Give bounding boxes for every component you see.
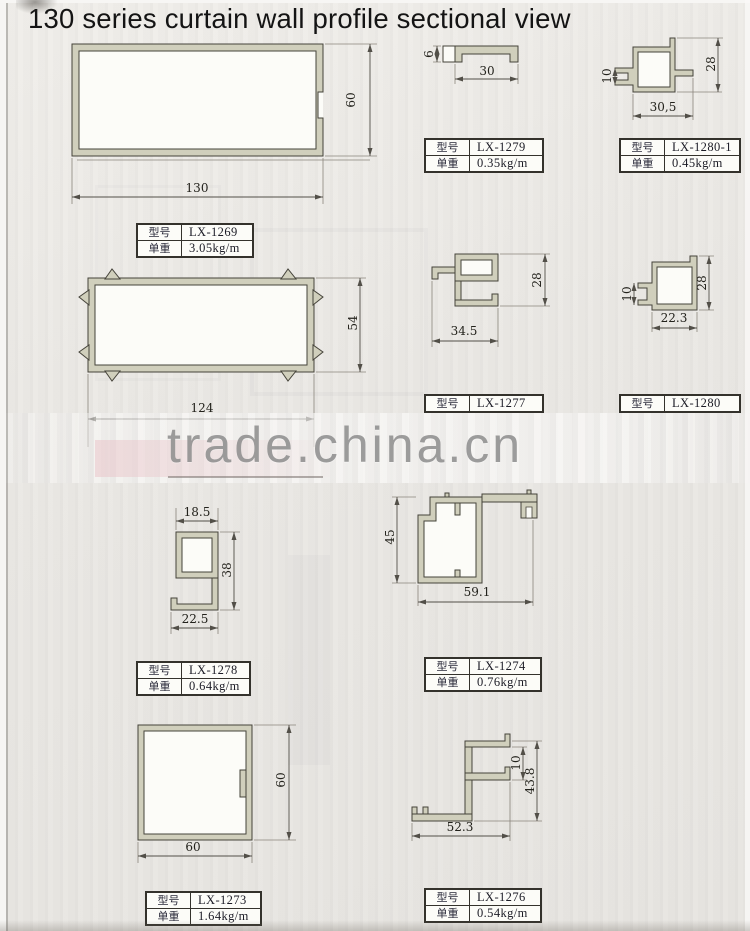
dim-bottom: 22.5 bbox=[182, 612, 209, 626]
table-row-model: 型号 LX-1280-1 bbox=[621, 140, 739, 155]
profile-drawing-lx1269: 130 60 bbox=[72, 44, 377, 204]
profile-face bbox=[72, 44, 323, 156]
table-row-weight: 单重 0.45kg/m bbox=[621, 155, 739, 171]
weight-label: 单重 bbox=[621, 156, 665, 171]
table-row-model: 型号 LX-1280 bbox=[621, 396, 739, 411]
model-label: 型号 bbox=[426, 396, 470, 411]
weight-label: 单重 bbox=[426, 156, 470, 171]
profile-drawing-lx1273: 60 60 bbox=[138, 725, 296, 863]
profile-wall bbox=[171, 578, 218, 610]
dim-top: 18.5 bbox=[184, 505, 211, 519]
model-value: LX-1279 bbox=[470, 140, 542, 155]
dim-height: 60 bbox=[344, 92, 358, 107]
table-row-model: 型号 LX-1269 bbox=[138, 225, 252, 240]
table-row-model: 型号 LX-1278 bbox=[138, 663, 249, 678]
table-row-model: 型号 LX-1279 bbox=[426, 140, 542, 155]
profile-drawing-lx1274: 45 59.1 bbox=[383, 490, 537, 606]
model-label: 型号 bbox=[621, 396, 665, 411]
table-row-model: 型号 LX-1274 bbox=[426, 659, 540, 674]
spec-table-lx1280: 型号 LX-1280 bbox=[619, 394, 741, 413]
hook-slot bbox=[526, 507, 532, 518]
dim-height: 6 bbox=[422, 50, 436, 58]
scan-smudge bbox=[16, 0, 58, 14]
dim-height: 54 bbox=[346, 315, 360, 331]
watermark-underline bbox=[168, 476, 323, 478]
profile-wall bbox=[465, 780, 472, 814]
dim-mouth: 10 bbox=[600, 68, 614, 83]
dim-height: 28 bbox=[530, 272, 544, 287]
table-row-weight: 单重 3.05kg/m bbox=[138, 240, 252, 256]
profile-wall bbox=[465, 734, 510, 747]
dim-height: 38 bbox=[220, 562, 234, 577]
spec-table-lx1279: 型号 LX-1279 单重 0.35kg/m bbox=[424, 138, 544, 173]
dim-step: 10 bbox=[509, 755, 523, 770]
table-row-weight: 单重 0.64kg/m bbox=[138, 678, 249, 694]
table-row-weight: 单重 0.54kg/m bbox=[426, 905, 540, 921]
profile-arm bbox=[482, 494, 537, 502]
spec-table-lx1274: 型号 LX-1274 单重 0.76kg/m bbox=[424, 657, 542, 692]
profile-face bbox=[443, 46, 455, 62]
weight-label: 单重 bbox=[138, 241, 182, 256]
model-label: 型号 bbox=[426, 140, 470, 155]
dim-height: 28 bbox=[695, 275, 709, 290]
weight-label: 单重 bbox=[138, 679, 182, 694]
model-value: LX-1269 bbox=[182, 225, 252, 240]
dim-height: 60 bbox=[274, 772, 288, 787]
weight-value: 0.54kg/m bbox=[470, 906, 540, 921]
inner-tab bbox=[240, 770, 246, 797]
table-row-weight: 单重 0.76kg/m bbox=[426, 674, 540, 690]
weight-label: 单重 bbox=[426, 906, 470, 921]
profile-hook bbox=[412, 807, 428, 814]
dim-width: 59.1 bbox=[464, 585, 491, 599]
model-value: LX-1280 bbox=[665, 396, 739, 411]
dim-mouth: 10 bbox=[620, 286, 634, 301]
dim-width: 130 bbox=[186, 181, 209, 195]
weight-value: 0.76kg/m bbox=[470, 675, 540, 690]
table-row-model: 型号 LX-1273 bbox=[147, 893, 260, 908]
model-label: 型号 bbox=[621, 140, 665, 155]
dim-height: 43.8 bbox=[523, 768, 537, 795]
model-value: LX-1273 bbox=[191, 893, 260, 908]
spec-table-lx1280-1: 型号 LX-1280-1 单重 0.45kg/m bbox=[619, 138, 741, 173]
model-value: LX-1277 bbox=[470, 396, 542, 411]
watermark-text: trade.china.cn bbox=[167, 416, 523, 474]
spec-table-lx1278: 型号 LX-1278 单重 0.64kg/m bbox=[136, 661, 251, 696]
profile-face bbox=[138, 725, 252, 840]
profile-drawing-lx1280-1: 10 28 30,5 bbox=[600, 38, 723, 120]
dim-width: 52.3 bbox=[447, 820, 474, 834]
profile-face bbox=[418, 497, 482, 583]
scan-edge bbox=[0, 920, 750, 931]
dim-height: 45 bbox=[383, 529, 397, 544]
profile-drawing-lx1278: 18.5 38 22.5 bbox=[171, 505, 240, 634]
model-value: LX-1276 bbox=[470, 890, 540, 905]
profile-drawing-lx1279: 6 30 bbox=[422, 46, 518, 84]
scan-edge bbox=[6, 0, 8, 931]
profile-wall bbox=[455, 46, 518, 62]
spec-table-lx1276: 型号 LX-1276 单重 0.54kg/m bbox=[424, 888, 542, 923]
model-label: 型号 bbox=[426, 890, 470, 905]
spec-table-lx1269: 型号 LX-1269 单重 3.05kg/m bbox=[136, 223, 254, 258]
model-label: 型号 bbox=[147, 893, 191, 908]
model-label: 型号 bbox=[138, 663, 182, 678]
table-row-model: 型号 LX-1276 bbox=[426, 890, 540, 905]
table-row-weight: 单重 0.35kg/m bbox=[426, 155, 542, 171]
page-title: 130 series curtain wall profile sectiona… bbox=[28, 3, 571, 35]
model-value: LX-1280-1 bbox=[665, 140, 739, 155]
model-label: 型号 bbox=[426, 659, 470, 674]
scanned-profile-sheet: 130 series curtain wall profile sectiona… bbox=[0, 0, 750, 931]
dim-width: 60 bbox=[185, 840, 200, 854]
profile-face bbox=[88, 278, 314, 372]
profile-drawing-lx1276: 10 43.8 52.3 bbox=[412, 734, 542, 841]
profile-wall bbox=[432, 267, 456, 279]
weight-value: 0.45kg/m bbox=[665, 156, 739, 171]
profile-wall bbox=[455, 281, 461, 301]
scan-edge bbox=[0, 0, 750, 3]
scan-edge bbox=[745, 0, 750, 931]
weight-value: 0.35kg/m bbox=[470, 156, 542, 171]
dim-width: 34.5 bbox=[451, 324, 478, 338]
profile-drawing-lx1280: 10 28 22.3 bbox=[620, 256, 714, 332]
table-row-model: 型号 LX-1277 bbox=[426, 396, 542, 411]
profile-wall bbox=[465, 747, 472, 773]
dim-width: 30,5 bbox=[650, 100, 677, 114]
dim-width: 22.3 bbox=[661, 311, 688, 325]
spec-table-lx1277: 型号 LX-1277 bbox=[424, 394, 544, 413]
model-value: LX-1274 bbox=[470, 659, 540, 674]
dim-width: 30 bbox=[479, 64, 494, 78]
profile-drawing-lx1277: 28 34.5 bbox=[432, 254, 550, 347]
model-label: 型号 bbox=[138, 225, 182, 240]
model-value: LX-1278 bbox=[182, 663, 249, 678]
dim-height: 28 bbox=[704, 56, 718, 71]
weight-label: 单重 bbox=[426, 675, 470, 690]
weight-value: 3.05kg/m bbox=[182, 241, 252, 256]
weight-value: 0.64kg/m bbox=[182, 679, 249, 694]
